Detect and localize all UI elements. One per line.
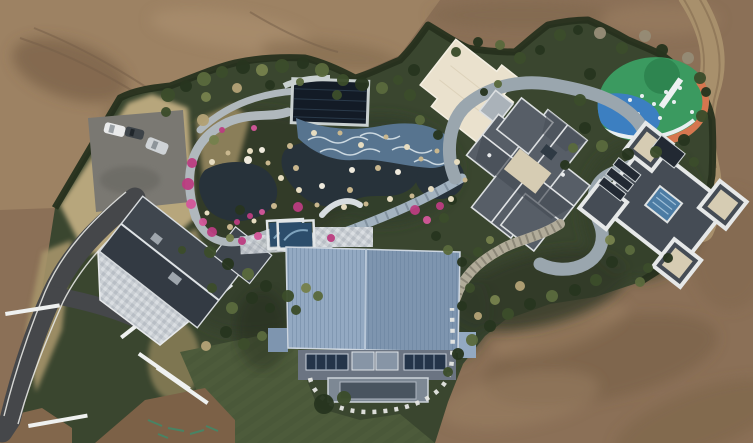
tree (678, 134, 690, 146)
rock (364, 202, 369, 207)
rock (278, 175, 284, 181)
rock (293, 165, 299, 171)
tree (161, 107, 171, 117)
tree (701, 87, 711, 97)
tree (204, 246, 216, 258)
glass-door-right (376, 352, 398, 370)
rock (375, 165, 381, 171)
tree (535, 45, 545, 55)
tree (207, 283, 217, 293)
tree (415, 115, 425, 125)
rock (205, 211, 210, 216)
tree (226, 234, 234, 242)
rock (463, 178, 468, 183)
rock (226, 151, 231, 156)
tree (201, 92, 211, 102)
azalea-flowers (182, 178, 194, 190)
aerial-photo (0, 0, 753, 443)
azalea-flowers (423, 216, 431, 224)
tree (484, 320, 496, 332)
play-equipment (664, 90, 668, 94)
tree (337, 391, 351, 405)
tree (332, 90, 342, 100)
tree (451, 47, 461, 57)
tree (465, 283, 475, 293)
rock (428, 186, 434, 192)
tree (260, 280, 272, 292)
tree (201, 341, 211, 351)
tree (643, 263, 653, 273)
tree (291, 305, 301, 315)
tree (220, 326, 232, 338)
tree (650, 146, 662, 158)
rock (338, 131, 343, 136)
tree (180, 80, 192, 92)
tree (275, 59, 289, 73)
tree (514, 52, 526, 64)
play-equipment (640, 94, 644, 98)
tree (337, 74, 349, 86)
rock (349, 167, 355, 173)
tree (313, 291, 323, 301)
azalea-flowers (410, 205, 420, 215)
rock (387, 196, 393, 202)
tree (209, 135, 219, 145)
rock (319, 183, 325, 189)
tree (596, 140, 608, 152)
tree (682, 52, 694, 64)
tree (301, 283, 311, 293)
tree (579, 122, 591, 134)
azalea-flowers (293, 202, 303, 212)
tree (663, 253, 673, 263)
play-equipment (690, 110, 694, 114)
tree (606, 256, 618, 268)
tree (216, 66, 228, 78)
tree (222, 258, 234, 270)
rock (435, 149, 440, 154)
play-equipment (678, 86, 682, 90)
tree (355, 77, 369, 91)
play-equipment (672, 100, 676, 104)
tree (473, 37, 483, 47)
rock (315, 203, 320, 208)
tree (297, 57, 309, 69)
tree (495, 40, 505, 50)
tree (515, 281, 525, 291)
tree (605, 235, 615, 245)
glass-door-left (352, 352, 374, 370)
tree (635, 277, 645, 287)
tree (524, 298, 536, 310)
rock (454, 159, 460, 165)
rock (341, 204, 347, 210)
play-equipment (658, 116, 662, 120)
tree (466, 334, 478, 346)
rock (271, 203, 277, 209)
rock (266, 161, 271, 166)
tree (486, 236, 494, 244)
azalea-flowers (238, 237, 246, 245)
tree (236, 60, 250, 74)
tree (246, 292, 258, 304)
tree (393, 75, 403, 85)
tree (232, 83, 242, 93)
tree (242, 268, 254, 280)
tree (616, 42, 628, 54)
tree (452, 348, 464, 360)
azalea-flowers (259, 209, 265, 215)
rock (410, 194, 415, 199)
rock (209, 159, 215, 165)
rock (287, 143, 293, 149)
tree (569, 284, 581, 296)
tree (256, 64, 268, 76)
tree (443, 367, 453, 377)
rock (395, 169, 401, 175)
azalea-flowers (187, 158, 197, 168)
tree (473, 247, 483, 257)
tree (197, 72, 211, 86)
tree (474, 312, 482, 320)
azalea-flowers (234, 219, 240, 225)
rock (247, 148, 253, 154)
tree (439, 213, 449, 223)
tree (494, 80, 502, 88)
tree (568, 143, 578, 153)
north-pool (278, 220, 315, 249)
rock (358, 142, 364, 148)
azalea-flowers (436, 202, 444, 210)
tree (584, 68, 596, 80)
tree (560, 160, 570, 170)
rock (384, 135, 389, 140)
metal-roof (268, 247, 476, 358)
window-band-right (404, 354, 446, 370)
tree (480, 88, 488, 96)
window-band-left (306, 354, 348, 370)
tree (282, 290, 294, 302)
azalea-flowers (219, 127, 225, 133)
tree (457, 257, 467, 267)
tree (694, 72, 706, 84)
tree (689, 157, 699, 167)
azalea-flowers (251, 125, 257, 131)
tree (376, 82, 388, 94)
tree (656, 44, 668, 56)
aerial-photo-stage (0, 0, 753, 443)
tree (296, 78, 304, 86)
tree (404, 89, 416, 101)
rock (347, 187, 353, 193)
tree (554, 29, 566, 41)
tree (408, 64, 420, 76)
play-equipment (652, 102, 656, 106)
tree (639, 30, 651, 42)
tree (314, 394, 334, 414)
rock (311, 130, 317, 136)
tree (226, 302, 238, 314)
tree (574, 94, 586, 106)
tree (265, 303, 275, 313)
azalea-flowers (186, 199, 196, 209)
azalea-flowers (247, 213, 253, 219)
ridge-line (365, 249, 366, 350)
tree (622, 148, 634, 160)
tree (433, 130, 443, 140)
tree (490, 295, 500, 305)
rock (244, 156, 252, 164)
south-facade (298, 350, 456, 380)
tree (443, 245, 453, 255)
tree (197, 114, 209, 126)
tree (265, 80, 275, 90)
rock (296, 187, 302, 193)
rock (448, 196, 454, 202)
rock (404, 144, 410, 150)
tree (457, 301, 467, 311)
azalea-flowers (254, 232, 262, 240)
tree (178, 246, 186, 254)
tree (546, 290, 558, 302)
play-equipment (628, 98, 632, 102)
azalea-flowers (199, 218, 207, 226)
tree (238, 338, 250, 350)
rock (252, 219, 257, 224)
tree (257, 331, 267, 341)
tree (594, 27, 606, 39)
tree (625, 245, 635, 255)
tree (161, 88, 175, 102)
tree (315, 63, 329, 77)
rock (259, 147, 265, 153)
rock (227, 224, 233, 230)
tree (696, 110, 708, 122)
azalea-flowers (207, 227, 217, 237)
north-patio (315, 227, 373, 247)
tree (502, 308, 514, 320)
tree (590, 274, 602, 286)
rock (419, 157, 424, 162)
tree (235, 205, 245, 215)
tree (573, 25, 583, 35)
tree (431, 231, 441, 241)
azalea-flowers (327, 234, 335, 242)
